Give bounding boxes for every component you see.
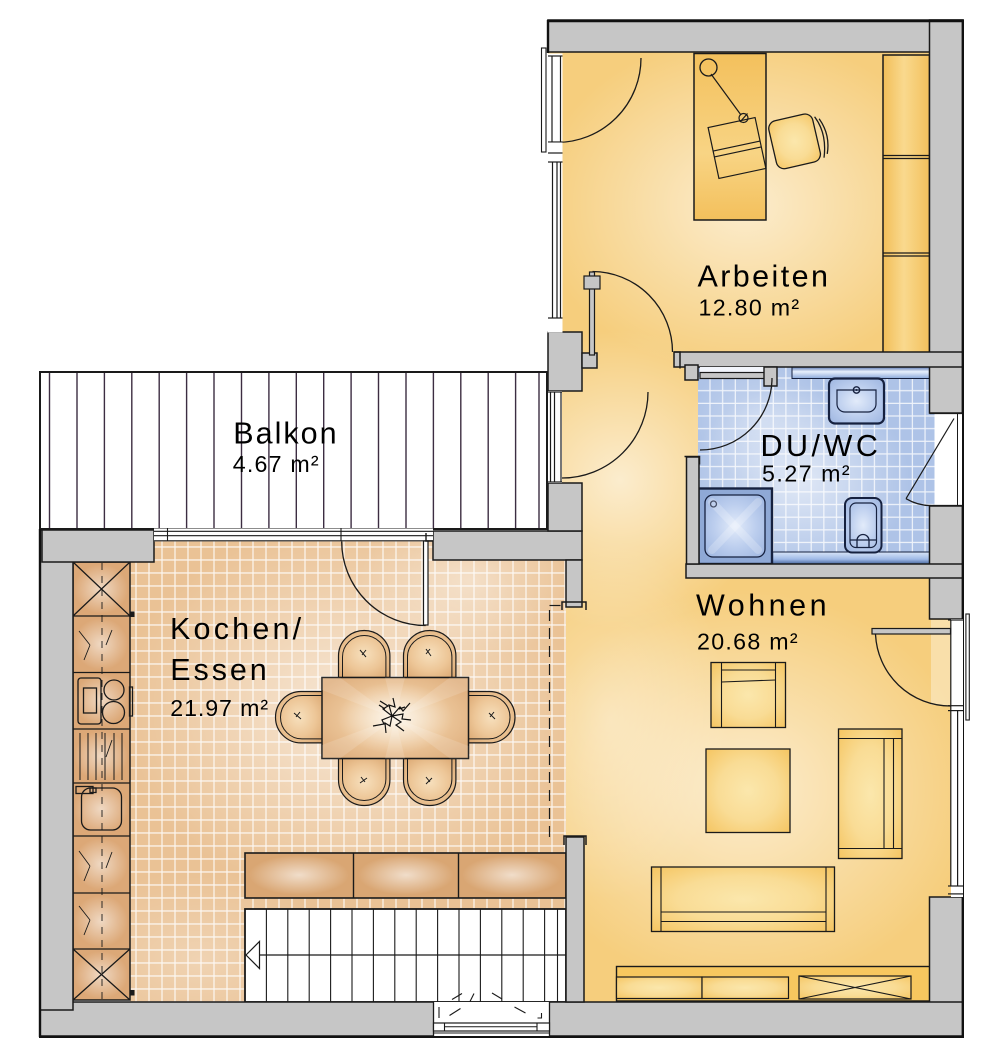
svg-text:Essen: Essen xyxy=(170,653,269,687)
svg-text:5.27 m²: 5.27 m² xyxy=(762,461,851,487)
svg-text:Kochen/: Kochen/ xyxy=(170,612,304,646)
svg-text:20.68 m²: 20.68 m² xyxy=(697,629,799,655)
svg-text:21.97 m²: 21.97 m² xyxy=(170,695,269,721)
svg-text:4.67 m²: 4.67 m² xyxy=(233,451,320,477)
svg-text:DU/WC: DU/WC xyxy=(761,429,882,463)
svg-text:Arbeiten: Arbeiten xyxy=(698,260,831,294)
svg-text:Wohnen: Wohnen xyxy=(696,589,830,623)
svg-text:Balkon: Balkon xyxy=(233,416,338,450)
svg-text:12.80 m²: 12.80 m² xyxy=(699,295,801,321)
